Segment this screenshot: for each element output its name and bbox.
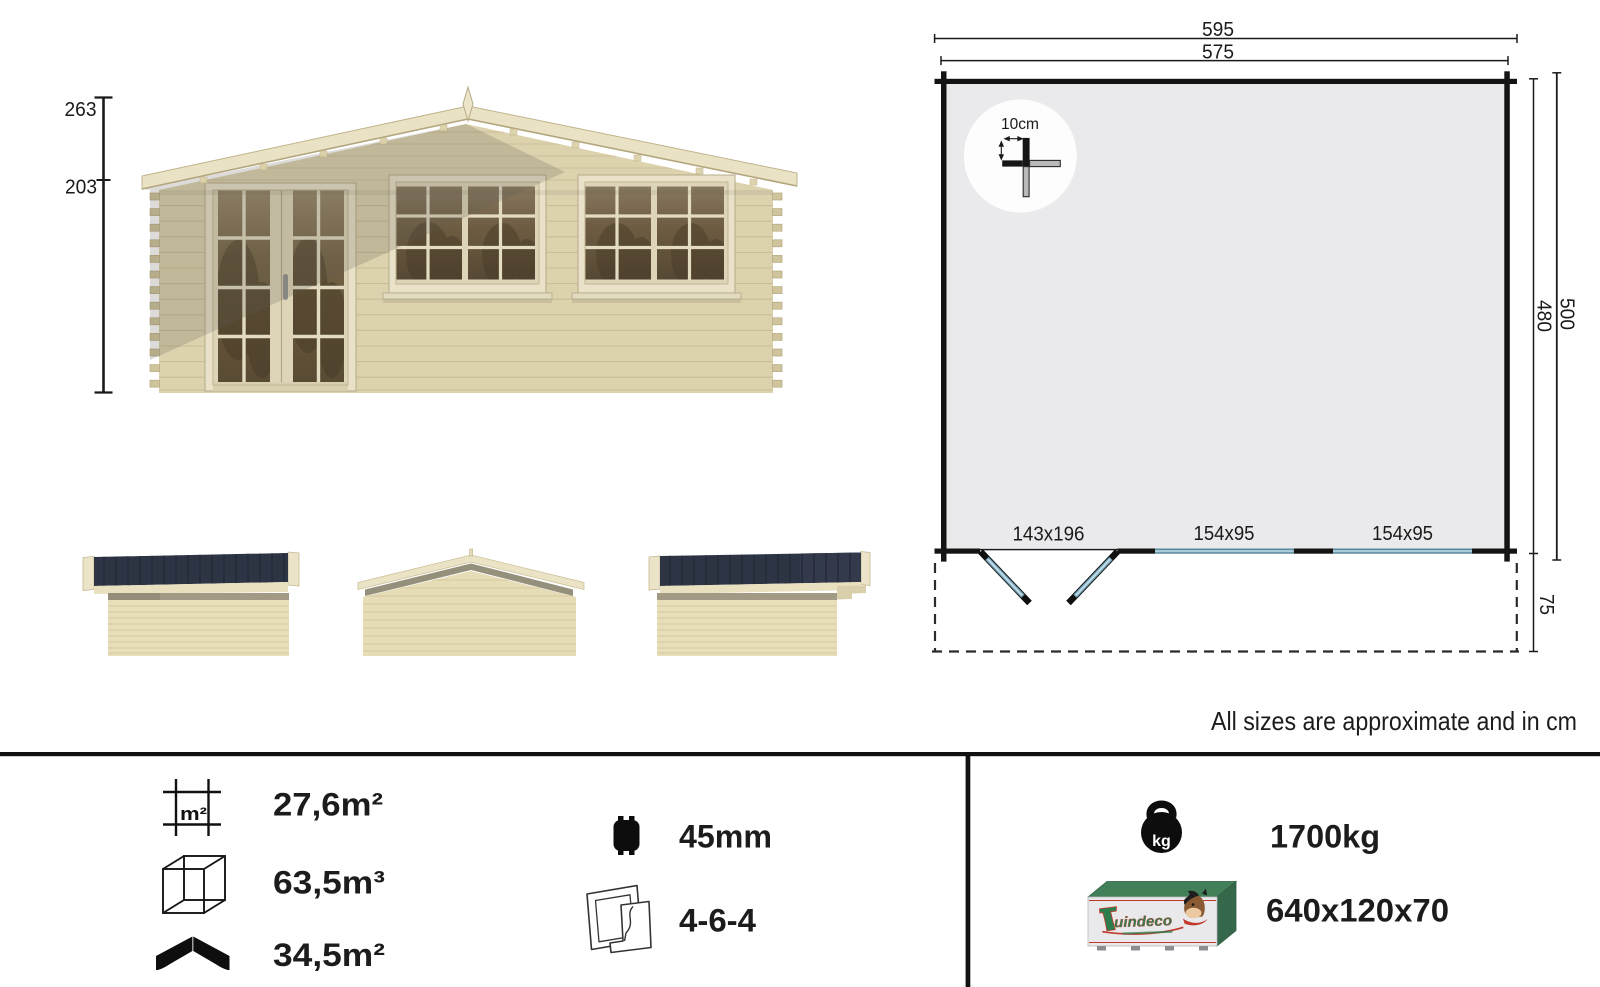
svg-text:480: 480 [1533, 300, 1555, 332]
svg-text:1700kg: 1700kg [1270, 819, 1380, 855]
svg-text:203: 203 [65, 177, 97, 199]
svg-text:143x196: 143x196 [1013, 524, 1085, 546]
svg-text:75: 75 [1535, 594, 1557, 615]
svg-text:34,5m²: 34,5m² [273, 937, 385, 973]
svg-text:27,6m²: 27,6m² [273, 787, 383, 823]
svg-text:10cm: 10cm [1001, 116, 1039, 133]
svg-text:63,5m³: 63,5m³ [273, 865, 385, 901]
svg-text:500: 500 [1556, 298, 1578, 330]
svg-text:All sizes are approximate and: All sizes are approximate and in cm [1211, 706, 1577, 736]
svg-text:45mm: 45mm [679, 819, 772, 855]
svg-text:154x95: 154x95 [1194, 523, 1255, 545]
svg-text:640x120x70: 640x120x70 [1266, 893, 1449, 929]
svg-text:m²: m² [180, 804, 207, 824]
svg-text:575: 575 [1202, 41, 1234, 63]
svg-text:595: 595 [1202, 19, 1234, 41]
svg-text:kg: kg [1152, 833, 1171, 850]
svg-text:263: 263 [65, 99, 97, 121]
svg-text:4-6-4: 4-6-4 [679, 903, 756, 939]
svg-text:154x95: 154x95 [1372, 523, 1433, 545]
svg-text:uindeco: uindeco [1114, 913, 1173, 931]
